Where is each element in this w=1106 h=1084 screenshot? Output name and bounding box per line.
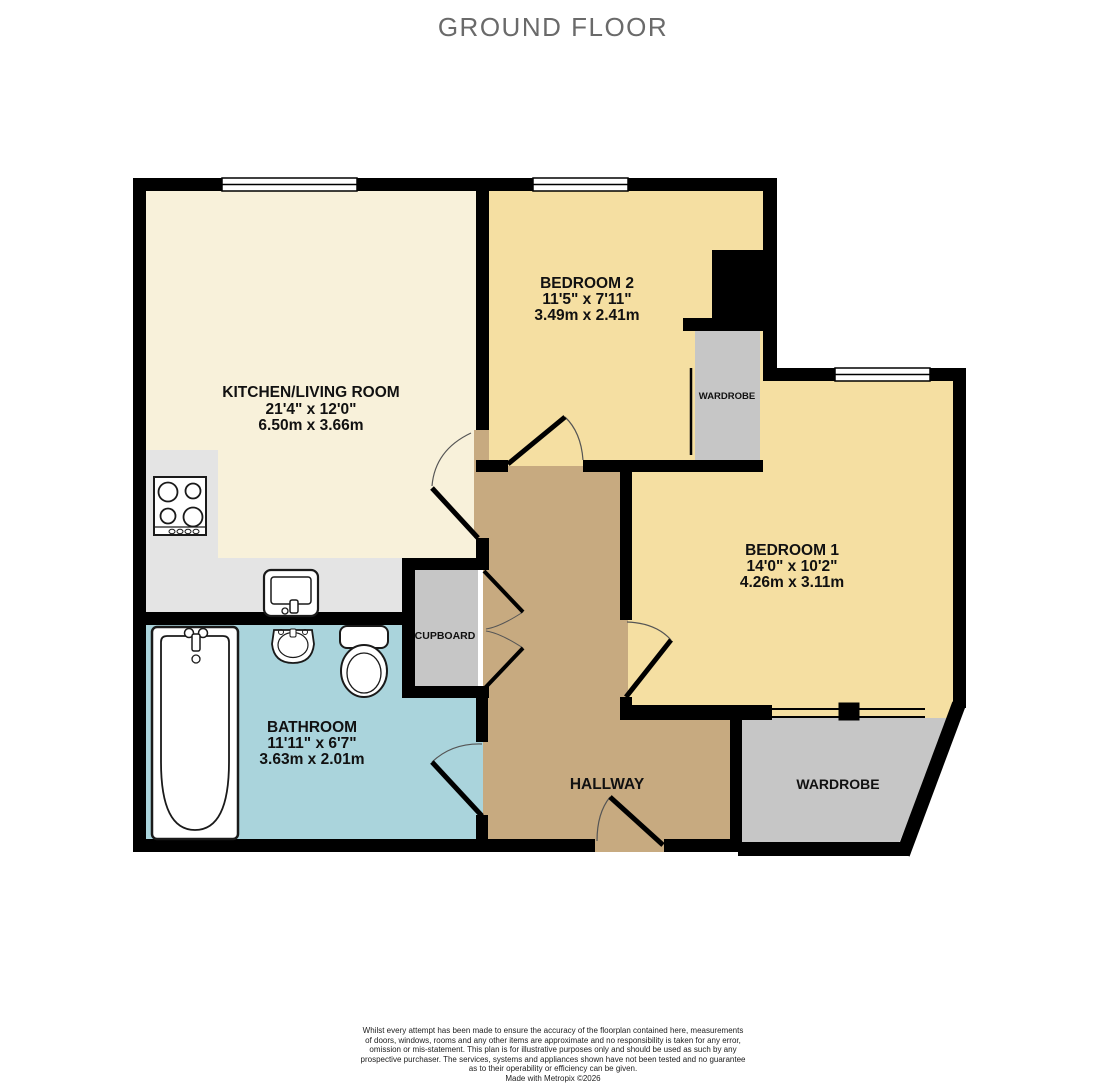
disclaimer-line: omission or mis-statement. This plan is … xyxy=(0,1045,1106,1055)
basin-fixture xyxy=(272,629,314,663)
window xyxy=(222,178,357,191)
disclaimer-line: as to their operability or efficiency ca… xyxy=(0,1064,1106,1074)
bathroom-dim-m: 3.63m x 2.01m xyxy=(259,751,364,768)
disclaimer-line: of doors, windows, rooms and any other i… xyxy=(0,1036,1106,1046)
disclaimer-line: prospective purchaser. The services, sys… xyxy=(0,1055,1106,1065)
bathroom-label: BATHROOM xyxy=(267,719,357,736)
cupboard-box xyxy=(413,568,478,688)
bedroom2-dim-ft: 11'5" x 7'11" xyxy=(542,291,631,308)
toilet-fixture xyxy=(340,626,388,697)
bedroom1-dim-m: 4.26m x 3.11m xyxy=(740,574,844,591)
kitchen-label: KITCHEN/LIVING ROOM xyxy=(222,384,399,401)
bathroom-dim-ft: 11'11" x 6'7" xyxy=(267,735,356,752)
disclaimer-credit: Made with Metropix ©2026 xyxy=(0,1074,1106,1084)
bathtub-fixture xyxy=(152,627,238,839)
kitchen-sink-fixture xyxy=(264,570,318,616)
wardrobe1-slider-stop xyxy=(839,703,859,720)
hob-fixture xyxy=(154,477,206,535)
bedroom1-label: BEDROOM 1 xyxy=(745,542,839,559)
bedroom1-dim-ft: 14'0" x 10'2" xyxy=(746,558,837,575)
bedroom2-label: BEDROOM 2 xyxy=(540,275,634,292)
bedroom2-dim-m: 3.49m x 2.41m xyxy=(534,307,639,324)
disclaimer: Whilst every attempt has been made to en… xyxy=(0,1026,1106,1084)
cupboard-label: CUPBOARD xyxy=(415,630,476,642)
disclaimer-line: Whilst every attempt has been made to en… xyxy=(0,1026,1106,1036)
kitchen-dim-m: 6.50m x 3.66m xyxy=(258,417,363,434)
hallway-label: HALLWAY xyxy=(570,776,645,793)
window xyxy=(835,368,930,381)
wardrobe-bedroom1-label: WARDROBE xyxy=(796,776,879,792)
window xyxy=(533,178,628,191)
kitchen-dim-ft: 21'4" x 12'0" xyxy=(265,401,356,418)
wardrobe-bedroom2-label: WARDROBE xyxy=(699,391,755,402)
floorplan: KITCHEN/LIVING ROOM 21'4" x 12'0" 6.50m … xyxy=(0,0,1106,1080)
